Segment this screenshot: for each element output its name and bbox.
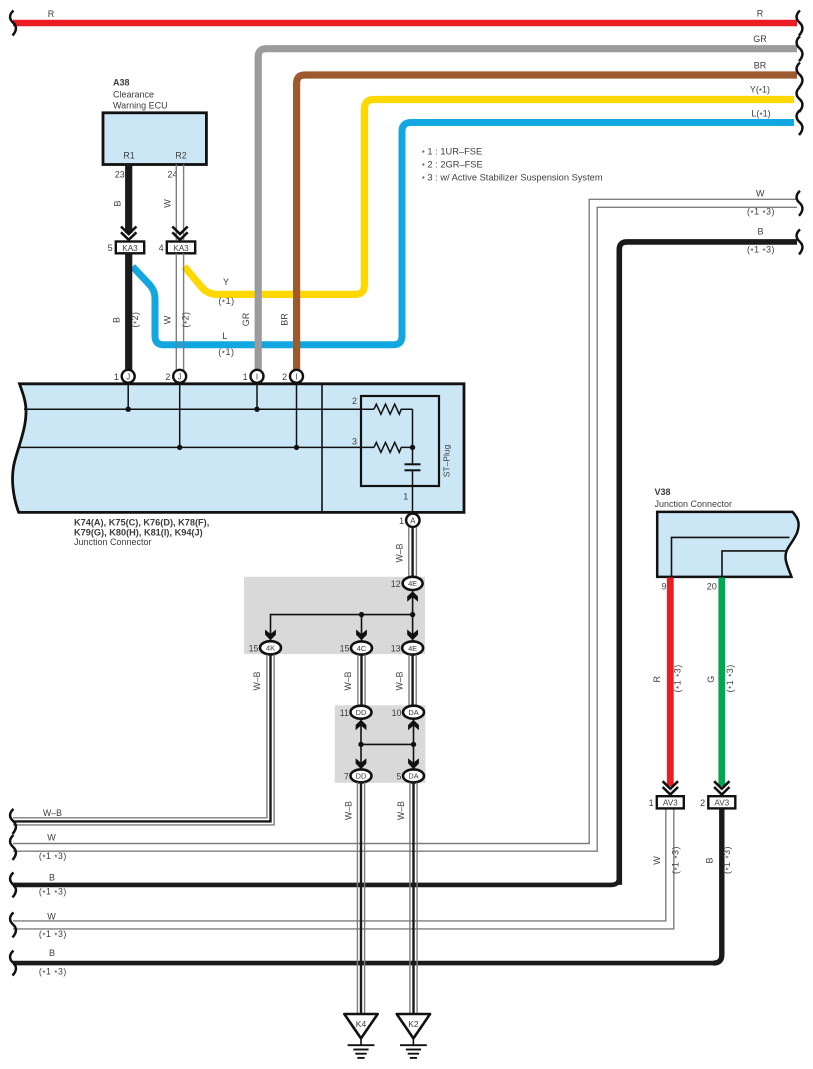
svg-text:B: B bbox=[49, 873, 55, 883]
svg-text:10: 10 bbox=[392, 708, 402, 718]
svg-text:B: B bbox=[704, 857, 714, 863]
svg-text:R: R bbox=[652, 675, 662, 682]
svg-text:W–B: W–B bbox=[343, 671, 353, 690]
svg-text:(*2): (*2) bbox=[181, 312, 193, 328]
svg-text:4C: 4C bbox=[357, 644, 367, 653]
svg-text:R: R bbox=[48, 9, 55, 19]
svg-text:W–B: W–B bbox=[43, 808, 62, 818]
svg-text:5: 5 bbox=[108, 243, 113, 253]
svg-text:2: 2 bbox=[352, 396, 357, 406]
svg-text:KA3: KA3 bbox=[122, 244, 138, 253]
svg-text:K2: K2 bbox=[408, 1019, 419, 1029]
svg-text:B: B bbox=[49, 948, 55, 958]
svg-text:20: 20 bbox=[707, 582, 717, 592]
svg-text:2: 2 bbox=[282, 372, 287, 382]
svg-text:ST–Plug: ST–Plug bbox=[442, 444, 452, 477]
svg-text:7: 7 bbox=[344, 772, 349, 782]
svg-text:W: W bbox=[756, 189, 765, 199]
svg-text:KA3: KA3 bbox=[173, 244, 189, 253]
svg-text:R1: R1 bbox=[123, 151, 135, 161]
svg-text:4E: 4E bbox=[408, 579, 417, 588]
svg-text:BR: BR bbox=[279, 313, 289, 326]
svg-text:W: W bbox=[47, 833, 56, 843]
svg-text:K79(G), K80(H), K81(I), K94(J): K79(G), K80(H), K81(I), K94(J) bbox=[74, 527, 203, 537]
svg-text:W–B: W–B bbox=[344, 801, 354, 820]
svg-text:* 2 : 2GR–FSE: * 2 : 2GR–FSE bbox=[422, 160, 483, 172]
svg-text:(*1 *3): (*1 *3) bbox=[673, 664, 685, 692]
svg-text:Y(*1): Y(*1) bbox=[750, 85, 770, 97]
svg-text:B: B bbox=[757, 227, 763, 237]
svg-text:11: 11 bbox=[340, 708, 349, 718]
svg-text:I: I bbox=[256, 372, 258, 381]
svg-text:A: A bbox=[410, 516, 416, 525]
svg-text:AV3: AV3 bbox=[714, 799, 729, 808]
svg-text:BR: BR bbox=[754, 61, 767, 71]
svg-text:(*1 *3): (*1 *3) bbox=[747, 207, 775, 219]
svg-text:23: 23 bbox=[115, 170, 125, 180]
svg-text:Warning ECU: Warning ECU bbox=[113, 101, 168, 111]
svg-text:1: 1 bbox=[243, 372, 248, 382]
svg-text:1: 1 bbox=[649, 798, 654, 808]
svg-text:I: I bbox=[295, 372, 297, 381]
svg-text:W: W bbox=[47, 912, 56, 922]
svg-text:* 1 : 1UR–FSE: * 1 : 1UR–FSE bbox=[422, 147, 482, 159]
svg-text:* 3 : w/ Active Stabilizer Sus: * 3 : w/ Active Stabilizer Suspension Sy… bbox=[422, 173, 603, 185]
svg-text:1: 1 bbox=[114, 372, 119, 382]
svg-text:R: R bbox=[757, 9, 764, 19]
svg-text:B: B bbox=[112, 200, 122, 206]
svg-text:1: 1 bbox=[403, 492, 408, 502]
svg-text:4E: 4E bbox=[408, 644, 417, 653]
svg-text:Junction Connector: Junction Connector bbox=[74, 537, 152, 547]
svg-text:K4: K4 bbox=[356, 1019, 367, 1029]
svg-text:W–B: W–B bbox=[395, 543, 405, 562]
svg-text:W: W bbox=[163, 315, 173, 324]
svg-text:4: 4 bbox=[159, 243, 164, 253]
svg-text:G: G bbox=[706, 676, 716, 683]
svg-text:R2: R2 bbox=[175, 151, 187, 161]
svg-text:15: 15 bbox=[249, 644, 259, 654]
svg-text:4K: 4K bbox=[266, 644, 275, 653]
svg-text:3: 3 bbox=[352, 437, 357, 447]
svg-text:DD: DD bbox=[356, 772, 367, 781]
svg-text:J: J bbox=[178, 372, 182, 381]
svg-text:(*1): (*1) bbox=[218, 296, 234, 308]
svg-text:Y: Y bbox=[223, 277, 229, 287]
svg-text:L: L bbox=[222, 331, 227, 341]
svg-text:DA: DA bbox=[408, 772, 418, 781]
svg-text:W–B: W–B bbox=[395, 671, 405, 690]
svg-text:W–B: W–B bbox=[252, 671, 262, 690]
svg-text:9: 9 bbox=[661, 582, 666, 592]
svg-text:K74(A), K75(C), K76(D), K78(F): K74(A), K75(C), K76(D), K78(F), bbox=[74, 518, 209, 528]
svg-text:12: 12 bbox=[391, 579, 401, 589]
svg-text:GR: GR bbox=[753, 34, 767, 44]
svg-text:(*1 *3): (*1 *3) bbox=[39, 887, 67, 899]
svg-text:GR: GR bbox=[241, 312, 251, 326]
svg-text:(*1 *3): (*1 *3) bbox=[39, 851, 67, 863]
svg-text:DA: DA bbox=[408, 708, 418, 717]
svg-text:15: 15 bbox=[340, 644, 350, 654]
svg-text:(*2): (*2) bbox=[130, 312, 142, 328]
svg-text:13: 13 bbox=[391, 644, 401, 654]
svg-text:(*1 *3): (*1 *3) bbox=[722, 846, 734, 874]
svg-text:B: B bbox=[111, 317, 121, 323]
svg-text:DD: DD bbox=[356, 708, 367, 717]
svg-text:W: W bbox=[652, 856, 662, 865]
svg-text:2: 2 bbox=[165, 372, 170, 382]
svg-text:(*1 *3): (*1 *3) bbox=[671, 846, 683, 874]
svg-text:L(*1): L(*1) bbox=[751, 109, 770, 121]
svg-text:(*1 *3): (*1 *3) bbox=[725, 664, 737, 692]
svg-text:(*1 *3): (*1 *3) bbox=[747, 245, 775, 257]
svg-text:5: 5 bbox=[396, 772, 401, 782]
svg-text:(*1 *3): (*1 *3) bbox=[39, 929, 67, 941]
svg-text:Clearance: Clearance bbox=[113, 90, 154, 100]
svg-text:(*1): (*1) bbox=[218, 347, 234, 359]
svg-text:A38: A38 bbox=[113, 78, 130, 88]
svg-text:1: 1 bbox=[399, 516, 404, 526]
svg-text:W–B: W–B bbox=[396, 801, 406, 820]
svg-text:Junction Connector: Junction Connector bbox=[655, 499, 733, 509]
svg-text:AV3: AV3 bbox=[663, 799, 678, 808]
svg-text:W: W bbox=[163, 199, 173, 208]
svg-text:J: J bbox=[126, 372, 130, 381]
svg-text:2: 2 bbox=[700, 798, 705, 808]
svg-text:(*1 *3): (*1 *3) bbox=[39, 966, 67, 978]
svg-text:V38: V38 bbox=[655, 487, 671, 497]
